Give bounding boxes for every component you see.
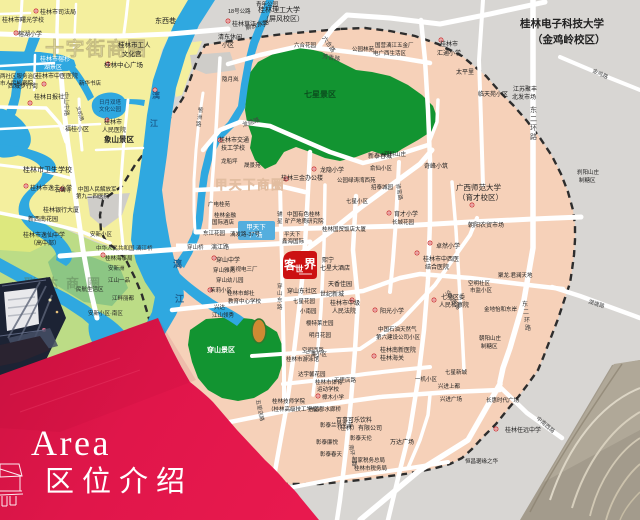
svg-text:矿产地质研究院: 矿产地质研究院 (285, 217, 324, 225)
svg-text:临天苑小区: 临天苑小区 (478, 90, 508, 98)
svg-text:甲天下: 甲天下 (246, 223, 266, 231)
svg-text:招泰城园: 招泰城园 (371, 183, 394, 191)
svg-text:金地怡和东岸: 金地怡和东岸 (484, 305, 518, 313)
svg-text:两社区服务治区: 两社区服务治区 (0, 72, 39, 80)
svg-text:彰泰春天: 彰泰春天 (320, 450, 343, 458)
svg-text:市监小区: 市监小区 (470, 286, 493, 294)
svg-text:桂林银行大厦: 桂林银行大厦 (43, 206, 79, 214)
svg-text:桂林市榕杉: 桂林市榕杉 (40, 55, 70, 63)
svg-text:江: 江 (150, 118, 158, 128)
svg-text:穿山中学: 穿山中学 (216, 256, 240, 264)
svg-text:制糖区: 制糖区 (579, 176, 596, 184)
svg-text:人民法院: 人民法院 (332, 307, 356, 315)
svg-text:桂林南新医院: 桂林南新医院 (380, 346, 416, 354)
svg-text:环: 环 (524, 317, 530, 324)
svg-text:漓发路-37号: 漓发路-37号 (230, 230, 260, 238)
svg-text:世纪新城: 世纪新城 (320, 290, 344, 298)
svg-text:市人民检察院: 市人民检察院 (0, 79, 34, 87)
svg-text:兴达: 兴达 (214, 303, 226, 311)
svg-text:百事可乐饮料: 百事可乐饮料 (336, 416, 372, 424)
svg-text:东: 东 (277, 296, 283, 304)
svg-text:桂林市: 桂林市 (440, 40, 458, 48)
svg-text:东: 东 (530, 105, 537, 114)
svg-text:山: 山 (277, 289, 283, 297)
svg-text:刹阳山庄: 刹阳山庄 (577, 168, 600, 176)
svg-text:榕湖小学: 榕湖小学 (18, 30, 42, 38)
svg-text:聚龙.君澜天地: 聚龙.君澜天地 (498, 271, 533, 279)
svg-text:公园绿涛湾西苑: 公园绿涛湾西苑 (337, 176, 376, 184)
svg-text:鑫海国际: 鑫海国际 (282, 237, 305, 245)
svg-text:二: 二 (530, 116, 537, 123)
svg-text:江山领秀: 江山领秀 (212, 311, 235, 319)
svg-text:桂林市中医医院: 桂林市中医医院 (36, 72, 78, 80)
svg-text:象山景区: 象山景区 (104, 134, 134, 144)
svg-text:天香佳园: 天香佳园 (328, 280, 352, 288)
svg-text:公园林苑: 公园林苑 (352, 45, 375, 53)
svg-text:青年公园: 青年公园 (256, 0, 279, 8)
svg-text:龙船坪: 龙船坪 (221, 157, 238, 165)
svg-text:路: 路 (277, 303, 283, 311)
svg-text:桂林海关: 桂林海关 (380, 354, 404, 362)
svg-text:国家税务总局: 国家税务总局 (352, 456, 385, 464)
svg-text:穿山景区: 穿山景区 (207, 345, 235, 354)
svg-text:安新小区: 安新小区 (90, 230, 113, 238)
svg-text:訾: 訾 (198, 107, 204, 114)
svg-text:桂林市卫生学校: 桂林市卫生学校 (23, 165, 72, 174)
svg-text:穿山幼儿园: 穿山幼儿园 (216, 276, 244, 284)
svg-text:穿: 穿 (277, 282, 283, 290)
svg-text:五里店路: 五里店路 (334, 376, 357, 384)
svg-text:桂林草江小学: 桂林草江小学 (232, 20, 268, 28)
svg-text:国际酒店: 国际酒店 (212, 218, 235, 226)
svg-text:江山一品: 江山一品 (108, 276, 131, 284)
svg-text:（高中部）: （高中部） (30, 239, 60, 247)
svg-text:东: 东 (522, 300, 528, 308)
svg-text:桂林技师学院: 桂林技师学院 (272, 397, 306, 405)
svg-text:朝阳农贸市场: 朝阳农贸市场 (468, 221, 504, 229)
svg-text:东江花园: 东江花园 (203, 229, 226, 237)
svg-text:桂林海事局: 桂林海事局 (105, 254, 133, 262)
svg-text:制糖区: 制糖区 (481, 342, 498, 350)
svg-text:桂林任远中学: 桂林任远中学 (505, 426, 541, 434)
svg-text:熙宁: 熙宁 (322, 256, 334, 264)
svg-text:桂林国贸饭店大厦: 桂林国贸饭店大厦 (322, 225, 367, 233)
svg-text:云峰寺: 云峰寺 (55, 186, 72, 194)
svg-text:世: 世 (295, 264, 304, 274)
svg-text:七星景区: 七星景区 (304, 89, 336, 99)
svg-text:中国石油天然气: 中国石油天然气 (378, 325, 417, 333)
svg-text:一机小区: 一机小区 (415, 375, 438, 383)
svg-text:桂林市工人: 桂林市工人 (118, 40, 151, 49)
svg-text:（屏风校区）: （屏风校区） (262, 14, 304, 23)
svg-text:星: 星 (277, 218, 283, 225)
svg-text:六合花园: 六合花园 (294, 41, 317, 49)
svg-text:朝阳山庄: 朝阳山庄 (479, 334, 502, 342)
svg-text:桂林日报社: 桂林日报社 (34, 93, 64, 101)
svg-text:教育中心学校: 教育中心学校 (228, 297, 262, 305)
svg-text:樱特莱庄园: 樱特莱庄园 (306, 319, 334, 327)
svg-text:万达广场: 万达广场 (390, 438, 414, 446)
svg-text:阳光小学: 阳光小学 (380, 307, 404, 315)
svg-text:东西巷: 东西巷 (155, 16, 176, 25)
svg-text:空明西路: 空明西路 (302, 346, 325, 354)
svg-text:中华人民共和国 漓江桥: 中华人民共和国 漓江桥 (96, 244, 153, 252)
svg-text:兴进上都: 兴进上都 (438, 382, 461, 390)
svg-text:漓: 漓 (152, 90, 160, 100)
svg-text:洲: 洲 (197, 115, 203, 121)
svg-text:（桂林高级技工学校）: （桂林高级技工学校） (268, 405, 323, 413)
svg-text:广电桂苑: 广电桂苑 (208, 200, 231, 208)
svg-text:江畔丽都: 江畔丽都 (112, 294, 135, 302)
svg-text:小南园: 小南园 (300, 307, 317, 315)
svg-text:桂林中心广场: 桂林中心广场 (104, 60, 144, 69)
svg-text:江: 江 (175, 293, 184, 304)
svg-text:安新洲: 安新洲 (108, 264, 125, 272)
svg-text:二: 二 (523, 310, 529, 316)
svg-text:桂林市交通: 桂林市交通 (219, 136, 249, 144)
svg-text:俞仙小区: 俞仙小区 (370, 164, 393, 172)
svg-text:桂林市司法局: 桂林市司法局 (40, 8, 76, 16)
svg-text:七星新城: 七星新城 (445, 368, 468, 376)
svg-text:明月花园: 明月花园 (309, 331, 332, 339)
svg-text:桂林市曙光学校: 桂林市曙光学校 (2, 16, 44, 24)
svg-text:中国人民解放军: 中国人民解放军 (78, 185, 117, 193)
svg-text:兴进广场: 兴进广场 (440, 395, 463, 403)
svg-text:长惠时代广场: 长惠时代广场 (486, 396, 520, 404)
svg-text:桂林市中西医: 桂林市中西医 (423, 255, 459, 263)
svg-text:隐月岚: 隐月岚 (222, 75, 239, 83)
svg-text:桂林市税务局: 桂林市税务局 (354, 464, 387, 472)
svg-text:文化宫: 文化宫 (122, 49, 142, 58)
svg-text:江苏聚丰: 江苏聚丰 (513, 85, 537, 93)
svg-text:桂林市: 桂林市 (104, 118, 122, 126)
svg-text:桂林市邮社: 桂林市邮社 (227, 289, 255, 297)
svg-text:北发市场: 北发市场 (512, 93, 536, 101)
svg-text:中国有色桂林: 中国有色桂林 (287, 210, 321, 218)
svg-text:达宇馨花园: 达宇馨花园 (298, 370, 326, 378)
svg-text:桂林市中级: 桂林市中级 (330, 299, 360, 307)
svg-text:路: 路 (525, 324, 531, 332)
svg-text:国营漓江五金厂: 国营漓江五金厂 (375, 41, 414, 49)
svg-text:恒昌琚缘之华: 恒昌琚缘之华 (465, 457, 499, 465)
svg-text:日月双塔: 日月双塔 (99, 98, 122, 106)
svg-text:甲天下商圈: 甲天下商圈 (215, 177, 285, 192)
svg-text:结合医院: 结合医院 (425, 263, 449, 271)
svg-text:卓然小学: 卓然小学 (436, 242, 460, 250)
svg-text:彰泰天伦: 彰泰天伦 (350, 434, 373, 442)
svg-text:Area: Area (31, 423, 111, 463)
svg-text:桂林金融: 桂林金融 (214, 211, 237, 219)
svg-text:清东休闲: 清东休闲 (218, 33, 242, 41)
svg-text:人民医院: 人民医院 (102, 126, 126, 134)
svg-text:七星大酒店: 七星大酒店 (320, 264, 350, 272)
svg-text:太平里: 太平里 (456, 68, 474, 76)
svg-text:彰泰廉悦: 彰泰廉悦 (316, 438, 339, 446)
svg-text:七星小区: 七星小区 (346, 197, 369, 205)
svg-text:樟木小学: 樟木小学 (322, 393, 345, 401)
svg-text:路: 路 (196, 120, 202, 128)
svg-text:长城花园: 长城花园 (392, 218, 415, 226)
svg-text:广西师范大学: 广西师范大学 (456, 182, 501, 192)
svg-text:龙隐小学: 龙隐小学 (320, 166, 344, 174)
svg-text:桂林电子科技大学: 桂林电子科技大学 (519, 17, 604, 30)
svg-text:电广西生活区: 电广西生活区 (373, 49, 407, 57)
svg-text:小区: 小区 (222, 41, 234, 49)
svg-text:桂林三金办公楼: 桂林三金办公楼 (281, 174, 323, 182)
svg-text:区位介绍: 区位介绍 (45, 465, 193, 498)
svg-text:奇峰小筑: 奇峰小筑 (424, 162, 448, 170)
svg-text:汇通小学: 汇通小学 (437, 49, 461, 57)
svg-text:桂林市游泳馆: 桂林市游泳馆 (286, 355, 320, 363)
svg-text:润科山庄: 润科山庄 (384, 150, 407, 158)
svg-text:平天下: 平天下 (284, 231, 301, 238)
svg-text:穿山桥: 穿山桥 (187, 243, 204, 251)
svg-text:桂林市逸仙中学: 桂林市逸仙中学 (23, 231, 65, 239)
svg-text:安新小区·南区: 安新小区·南区 (88, 309, 123, 317)
svg-text:技工学校: 技工学校 (221, 144, 245, 152)
svg-text:空明社区: 空明社区 (468, 279, 491, 287)
svg-text:第九二四医院: 第九二四医院 (76, 192, 110, 200)
svg-text:界: 界 (304, 256, 316, 271)
svg-text:（金鸡岭校区）: （金鸡岭校区） (532, 33, 606, 46)
svg-text:育才小学: 育才小学 (394, 210, 418, 218)
svg-text:福桂小区: 福桂小区 (65, 125, 89, 133)
svg-text:环: 环 (530, 124, 537, 132)
svg-text:漓江路: 漓江路 (211, 243, 229, 251)
svg-text:湖景区: 湖景区 (44, 63, 62, 71)
svg-text:运动学校: 运动学校 (317, 385, 340, 393)
svg-text:（桂林）有限公司: （桂林）有限公司 (334, 424, 382, 432)
svg-text:天视电三厂: 天视电三厂 (230, 265, 258, 273)
svg-text:路: 路 (530, 132, 537, 141)
svg-text:第六建设公司小区: 第六建设公司小区 (376, 333, 421, 341)
svg-text:七星花园: 七星花园 (293, 297, 316, 305)
svg-text:晟景苑: 晟景苑 (244, 161, 261, 169)
svg-text:新华书店: 新华书店 (79, 79, 102, 87)
svg-text:穿山东社区: 穿山东社区 (287, 287, 317, 295)
svg-text:漓: 漓 (173, 258, 182, 269)
svg-text:（育才校区）: （育才校区） (458, 192, 503, 202)
svg-text:文化公园: 文化公园 (99, 105, 122, 113)
svg-text:辅: 辅 (277, 210, 283, 218)
svg-text:新西南花园: 新西南花园 (28, 215, 58, 223)
svg-text:18号公路: 18号公路 (228, 7, 251, 15)
